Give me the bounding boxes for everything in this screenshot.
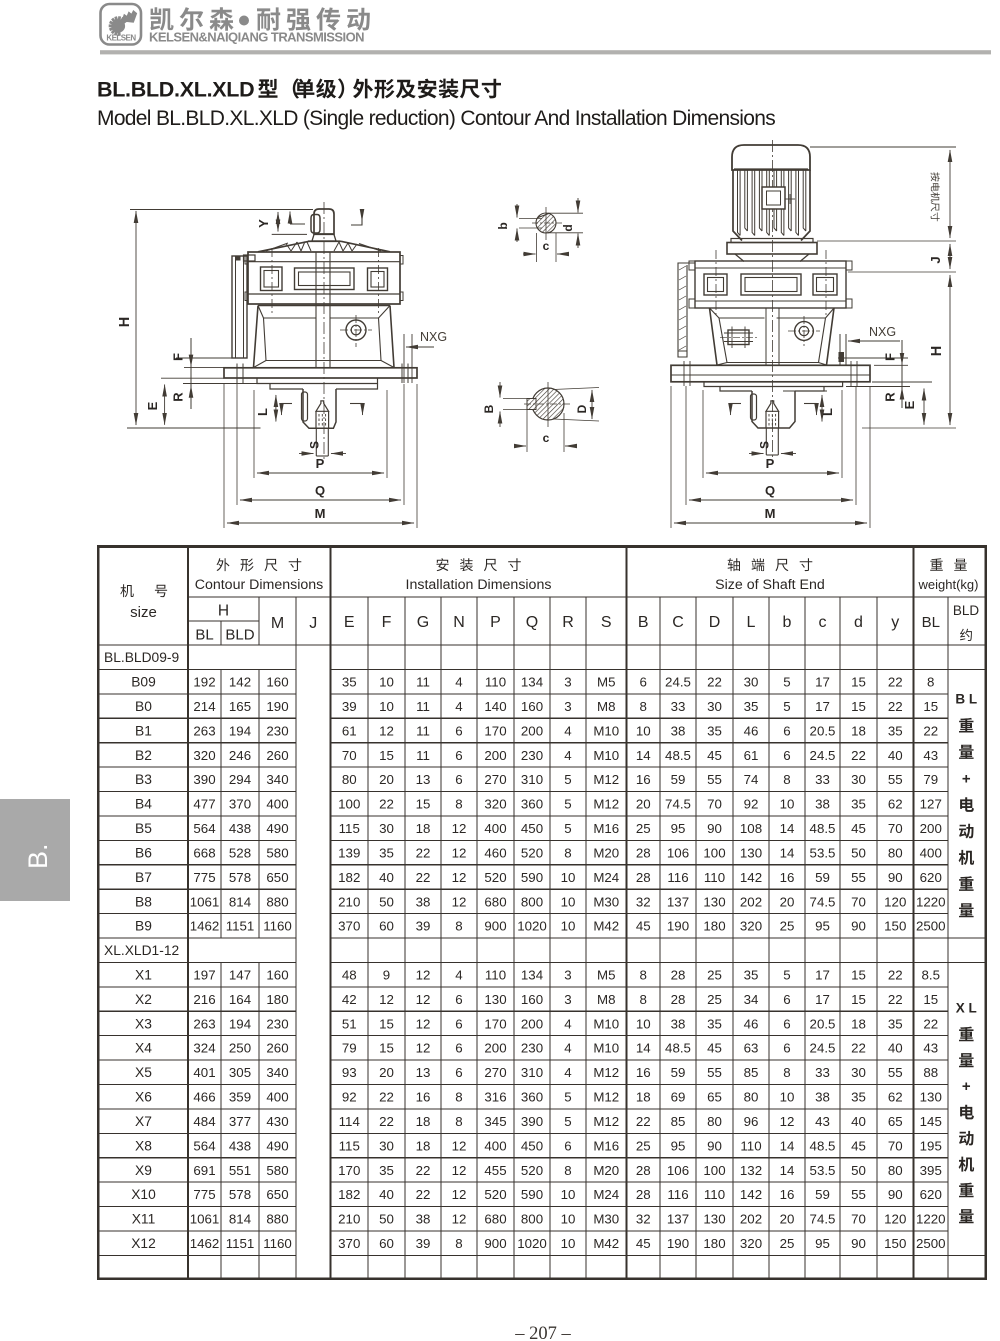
- svg-text:12: 12: [452, 1187, 467, 1202]
- svg-text:6: 6: [455, 723, 462, 738]
- svg-text:145: 145: [920, 1114, 942, 1129]
- svg-text:S: S: [601, 614, 612, 631]
- svg-text:6: 6: [783, 1041, 790, 1056]
- svg-text:b: b: [783, 614, 792, 631]
- svg-text:R: R: [883, 392, 898, 402]
- svg-text:316: 316: [484, 1090, 506, 1105]
- svg-text:370: 370: [338, 919, 360, 934]
- svg-text:18: 18: [416, 1114, 431, 1129]
- svg-text:320: 320: [740, 919, 762, 934]
- svg-text:22: 22: [888, 992, 903, 1007]
- svg-text:30: 30: [851, 1065, 866, 1080]
- svg-text:35: 35: [707, 1016, 722, 1031]
- svg-text:270: 270: [484, 772, 506, 787]
- svg-text:160: 160: [266, 675, 288, 690]
- svg-text:R: R: [562, 614, 574, 631]
- svg-text:28: 28: [671, 968, 686, 983]
- svg-text:25: 25: [780, 1236, 795, 1251]
- svg-text:M30: M30: [593, 894, 619, 909]
- svg-text:48: 48: [342, 968, 357, 983]
- svg-text:8: 8: [640, 699, 647, 714]
- svg-text:8: 8: [564, 845, 571, 860]
- svg-text:M: M: [271, 615, 284, 632]
- svg-text:1160: 1160: [263, 1236, 292, 1251]
- svg-text:650: 650: [266, 870, 288, 885]
- svg-text:40: 40: [379, 870, 394, 885]
- svg-text:X12: X12: [131, 1236, 156, 1251]
- svg-text:22: 22: [888, 699, 903, 714]
- svg-text:25: 25: [707, 968, 722, 983]
- svg-text:10: 10: [561, 894, 576, 909]
- svg-text:142: 142: [740, 870, 762, 885]
- svg-text:20.5: 20.5: [810, 1016, 836, 1031]
- svg-text:18: 18: [851, 1016, 866, 1031]
- svg-text:M5: M5: [597, 675, 615, 690]
- svg-text:70: 70: [707, 797, 722, 812]
- svg-text:520: 520: [484, 870, 506, 885]
- svg-text:M10: M10: [593, 1041, 619, 1056]
- svg-text:15: 15: [851, 968, 866, 983]
- svg-text:110: 110: [485, 968, 506, 983]
- svg-text:96: 96: [744, 1114, 759, 1129]
- svg-text:53.5: 53.5: [810, 845, 836, 860]
- svg-text:70: 70: [888, 821, 903, 836]
- svg-text:12: 12: [452, 1138, 467, 1153]
- svg-text:490: 490: [266, 1138, 288, 1153]
- svg-text:100: 100: [703, 1163, 725, 1178]
- svg-text:1061: 1061: [190, 894, 220, 909]
- svg-text:484: 484: [193, 1114, 215, 1129]
- svg-text:S: S: [308, 441, 322, 449]
- svg-text:182: 182: [338, 1187, 360, 1202]
- svg-text:20: 20: [636, 797, 651, 812]
- svg-text:M30: M30: [593, 1212, 619, 1227]
- svg-text:5: 5: [564, 821, 571, 836]
- svg-text:200: 200: [484, 748, 506, 763]
- svg-text:2500: 2500: [916, 919, 946, 934]
- svg-text:28: 28: [636, 1163, 651, 1178]
- svg-text:214: 214: [193, 699, 215, 714]
- svg-text:1151: 1151: [226, 1236, 255, 1251]
- svg-text:B1: B1: [135, 723, 152, 738]
- svg-text:M: M: [765, 506, 776, 521]
- svg-text:15: 15: [923, 699, 938, 714]
- svg-text:590: 590: [521, 1187, 543, 1202]
- svg-text:28: 28: [671, 992, 686, 1007]
- svg-text:260: 260: [266, 748, 288, 763]
- svg-text:294: 294: [229, 772, 251, 787]
- svg-text:450: 450: [521, 821, 543, 836]
- svg-text:X3: X3: [135, 1016, 152, 1031]
- svg-text:20: 20: [780, 894, 795, 909]
- svg-text:BL.BLD09-9: BL.BLD09-9: [104, 650, 179, 665]
- svg-text:50: 50: [379, 1212, 394, 1227]
- svg-text:190: 190: [667, 919, 689, 934]
- svg-text:X2: X2: [135, 992, 152, 1007]
- svg-text:Contour Dimensions: Contour Dimensions: [195, 577, 324, 593]
- svg-text:190: 190: [667, 1236, 689, 1251]
- svg-text:4: 4: [455, 675, 462, 690]
- svg-text:74: 74: [744, 772, 759, 787]
- svg-text:40: 40: [888, 748, 903, 763]
- svg-text:345: 345: [484, 1114, 506, 1129]
- svg-text:200: 200: [920, 821, 942, 836]
- svg-text:8: 8: [783, 772, 790, 787]
- svg-text:106: 106: [667, 845, 689, 860]
- svg-text:95: 95: [815, 1236, 830, 1251]
- svg-text:M12: M12: [593, 1114, 619, 1129]
- svg-text:39: 39: [342, 699, 357, 714]
- svg-text:230: 230: [266, 1016, 288, 1031]
- svg-text:X11: X11: [132, 1212, 156, 1227]
- svg-text:35: 35: [888, 1016, 903, 1031]
- svg-text:260: 260: [266, 1041, 288, 1056]
- svg-text:BL: BL: [922, 614, 940, 631]
- svg-text:70: 70: [888, 1138, 903, 1153]
- svg-text:Q: Q: [526, 614, 538, 631]
- svg-text:6: 6: [783, 992, 790, 1007]
- svg-text:74.5: 74.5: [665, 797, 691, 812]
- svg-text:43: 43: [923, 1041, 938, 1056]
- svg-text:B8: B8: [135, 894, 152, 909]
- svg-text:310: 310: [521, 772, 543, 787]
- svg-text:+: +: [962, 1078, 971, 1095]
- svg-text:110: 110: [740, 1138, 761, 1153]
- svg-text:BL.BLD.XL.XLD: BL.BLD.XL.XLD: [97, 78, 254, 102]
- svg-text:X9: X9: [135, 1163, 152, 1178]
- svg-text:16: 16: [636, 772, 651, 787]
- svg-text:192: 192: [193, 675, 215, 690]
- svg-text:18: 18: [416, 821, 431, 836]
- svg-text:134: 134: [521, 968, 543, 983]
- svg-text:4: 4: [455, 968, 462, 983]
- svg-text:564: 564: [193, 821, 215, 836]
- svg-text:22: 22: [416, 1187, 431, 1202]
- svg-text:691: 691: [193, 1163, 215, 1178]
- svg-text:160: 160: [521, 992, 543, 1007]
- svg-text:c: c: [543, 431, 550, 445]
- svg-text:12: 12: [452, 845, 467, 860]
- svg-text:69: 69: [671, 1090, 686, 1105]
- svg-text:b: b: [496, 222, 510, 229]
- svg-text:28: 28: [636, 845, 651, 860]
- svg-text:6: 6: [783, 723, 790, 738]
- svg-text:38: 38: [416, 1212, 431, 1227]
- svg-text:1220: 1220: [916, 1212, 946, 1227]
- svg-text:401: 401: [193, 1065, 215, 1080]
- svg-text:4: 4: [564, 1065, 571, 1080]
- svg-text:210: 210: [338, 894, 360, 909]
- svg-text:39: 39: [416, 919, 431, 934]
- svg-text:45: 45: [636, 1236, 651, 1251]
- svg-text:1462: 1462: [190, 1236, 220, 1251]
- svg-text:20: 20: [379, 772, 394, 787]
- svg-text:90: 90: [707, 1138, 722, 1153]
- svg-text:28: 28: [636, 1187, 651, 1202]
- svg-text:22: 22: [416, 845, 431, 860]
- svg-text:5: 5: [783, 675, 790, 690]
- svg-text:1020: 1020: [517, 1236, 547, 1251]
- svg-text:370: 370: [229, 797, 251, 812]
- svg-text:170: 170: [484, 1016, 506, 1031]
- svg-text:weight(kg): weight(kg): [918, 577, 979, 592]
- svg-text:M42: M42: [593, 1236, 619, 1251]
- svg-text:8: 8: [640, 992, 647, 1007]
- svg-text:360: 360: [521, 1090, 543, 1105]
- svg-text:M20: M20: [593, 845, 619, 860]
- svg-text:B7: B7: [135, 870, 152, 885]
- svg-text:17: 17: [815, 968, 830, 983]
- svg-text:J: J: [309, 615, 317, 632]
- svg-text:size: size: [130, 604, 157, 621]
- svg-text:E: E: [145, 401, 160, 410]
- svg-text:147: 147: [229, 968, 251, 983]
- svg-text:190: 190: [266, 699, 288, 714]
- svg-text:80: 80: [342, 772, 357, 787]
- svg-text:11: 11: [416, 699, 430, 714]
- svg-text:377: 377: [229, 1114, 251, 1129]
- svg-text:25: 25: [707, 992, 722, 1007]
- svg-text:– 207 –: – 207 –: [514, 1324, 571, 1341]
- svg-text:564: 564: [193, 1138, 215, 1153]
- svg-text:85: 85: [671, 1114, 686, 1129]
- svg-text:320: 320: [484, 797, 506, 812]
- svg-text:106: 106: [667, 1163, 689, 1178]
- svg-text:230: 230: [266, 723, 288, 738]
- svg-text:165: 165: [229, 699, 251, 714]
- svg-text:NXG: NXG: [420, 330, 447, 344]
- svg-text:45: 45: [636, 919, 651, 934]
- svg-text:6: 6: [783, 1016, 790, 1031]
- svg-text:35: 35: [379, 845, 394, 860]
- svg-text:12: 12: [416, 1041, 431, 1056]
- svg-text:18: 18: [636, 1090, 651, 1105]
- svg-text:90: 90: [851, 919, 866, 934]
- svg-text:650: 650: [266, 1187, 288, 1202]
- svg-text:110: 110: [704, 1187, 725, 1202]
- svg-text:46: 46: [744, 723, 759, 738]
- svg-text:400: 400: [484, 821, 506, 836]
- svg-text:800: 800: [521, 1212, 543, 1227]
- svg-text:8: 8: [564, 1163, 571, 1178]
- svg-text:X7: X7: [135, 1114, 152, 1129]
- svg-text:210: 210: [338, 1212, 360, 1227]
- svg-text:360: 360: [521, 797, 543, 812]
- svg-text:B09: B09: [131, 675, 156, 690]
- svg-text:6: 6: [455, 748, 462, 763]
- svg-text:3: 3: [564, 968, 571, 983]
- svg-text:43: 43: [815, 1114, 830, 1129]
- svg-text:12: 12: [379, 723, 394, 738]
- svg-text:430: 430: [266, 1114, 288, 1129]
- svg-text:22: 22: [923, 723, 938, 738]
- svg-text:320: 320: [740, 1236, 762, 1251]
- svg-text:c: c: [819, 614, 827, 631]
- svg-text:61: 61: [744, 748, 759, 763]
- svg-text:4: 4: [564, 1016, 571, 1031]
- svg-text:F: F: [382, 614, 392, 631]
- svg-text:M8: M8: [597, 992, 615, 1007]
- svg-text:H: H: [929, 346, 945, 356]
- svg-text:45: 45: [707, 748, 722, 763]
- svg-text:61: 61: [342, 723, 357, 738]
- svg-text:M8: M8: [597, 699, 615, 714]
- svg-text:X10: X10: [131, 1187, 156, 1202]
- svg-text:70: 70: [851, 894, 866, 909]
- svg-text:88: 88: [923, 1065, 938, 1080]
- svg-text:L: L: [255, 408, 270, 416]
- svg-text:12: 12: [379, 992, 394, 1007]
- svg-text:4: 4: [455, 699, 462, 714]
- svg-text:X4: X4: [135, 1041, 152, 1056]
- svg-text:15: 15: [379, 748, 394, 763]
- svg-text:8: 8: [455, 919, 462, 934]
- svg-text:668: 668: [193, 845, 215, 860]
- svg-text:200: 200: [521, 1016, 543, 1031]
- svg-text:M10: M10: [593, 1016, 619, 1031]
- svg-text:65: 65: [707, 1090, 722, 1105]
- svg-text:F: F: [171, 353, 186, 361]
- svg-text:48.5: 48.5: [665, 748, 691, 763]
- svg-text:B: B: [482, 404, 496, 413]
- svg-text:16: 16: [636, 1065, 651, 1080]
- svg-text:D: D: [709, 614, 721, 631]
- svg-text:12: 12: [416, 1016, 431, 1031]
- svg-text:22: 22: [888, 968, 903, 983]
- svg-text:30: 30: [744, 675, 759, 690]
- svg-text:80: 80: [707, 1114, 722, 1129]
- svg-text:108: 108: [740, 821, 762, 836]
- svg-text:38: 38: [671, 723, 686, 738]
- svg-text:Size of Shaft End: Size of Shaft End: [715, 577, 825, 593]
- svg-text:390: 390: [521, 1114, 543, 1129]
- svg-text:12: 12: [452, 894, 467, 909]
- svg-text:880: 880: [266, 1212, 288, 1227]
- svg-text:35: 35: [342, 675, 357, 690]
- svg-text:246: 246: [229, 748, 251, 763]
- svg-text:M: M: [315, 506, 326, 521]
- svg-text:115: 115: [339, 821, 360, 836]
- svg-text:22: 22: [379, 797, 394, 812]
- svg-text:16: 16: [780, 1187, 795, 1202]
- svg-text:197: 197: [193, 968, 215, 983]
- svg-text:55: 55: [707, 772, 722, 787]
- svg-text:230: 230: [521, 748, 543, 763]
- svg-text:Q: Q: [315, 483, 325, 498]
- svg-text:10: 10: [561, 870, 576, 885]
- svg-text:395: 395: [920, 1163, 942, 1178]
- svg-text:3: 3: [564, 675, 571, 690]
- svg-text:22: 22: [416, 870, 431, 885]
- svg-text:25: 25: [636, 1138, 651, 1153]
- svg-text:14: 14: [780, 1163, 795, 1178]
- svg-text:13: 13: [416, 1065, 431, 1080]
- svg-text:400: 400: [484, 1138, 506, 1153]
- svg-text:Y: Y: [256, 219, 271, 228]
- svg-text:170: 170: [338, 1163, 360, 1178]
- svg-text:132: 132: [740, 1163, 762, 1178]
- svg-text:55: 55: [851, 1187, 866, 1202]
- svg-text:775: 775: [193, 870, 215, 885]
- svg-text:137: 137: [667, 1212, 689, 1227]
- svg-text:50: 50: [379, 894, 394, 909]
- svg-text:F: F: [883, 353, 898, 361]
- svg-text:45: 45: [851, 821, 866, 836]
- svg-text:142: 142: [229, 675, 251, 690]
- svg-text:B4: B4: [135, 797, 152, 812]
- svg-text:1160: 1160: [263, 919, 292, 934]
- svg-text:14: 14: [780, 1138, 795, 1153]
- svg-text:P: P: [316, 456, 325, 471]
- svg-text:X5: X5: [135, 1065, 152, 1080]
- svg-text:460: 460: [484, 845, 506, 860]
- svg-text:M42: M42: [593, 919, 619, 934]
- svg-text:85: 85: [744, 1065, 759, 1080]
- svg-text:BLD: BLD: [953, 603, 980, 618]
- svg-text:12: 12: [452, 821, 467, 836]
- svg-text:8: 8: [455, 797, 462, 812]
- svg-text:305: 305: [229, 1065, 251, 1080]
- svg-text:130: 130: [920, 1090, 942, 1105]
- svg-text:P: P: [766, 456, 775, 471]
- svg-text:93: 93: [342, 1065, 357, 1080]
- svg-text:216: 216: [193, 992, 215, 1007]
- svg-text:3: 3: [564, 699, 571, 714]
- svg-text:263: 263: [193, 723, 215, 738]
- svg-text:20: 20: [379, 1065, 394, 1080]
- svg-text:340: 340: [266, 1065, 288, 1080]
- svg-text:9: 9: [383, 968, 390, 983]
- svg-text:370: 370: [338, 1236, 360, 1251]
- svg-text:X8: X8: [135, 1138, 152, 1153]
- svg-text:520: 520: [521, 1163, 543, 1178]
- svg-text:230: 230: [521, 1041, 543, 1056]
- svg-text:390: 390: [193, 772, 215, 787]
- svg-text:120: 120: [884, 1212, 906, 1227]
- svg-text:10: 10: [561, 1236, 576, 1251]
- svg-text:5: 5: [564, 797, 571, 812]
- svg-text:814: 814: [229, 1212, 251, 1227]
- svg-text:B: B: [638, 614, 649, 631]
- svg-text:79: 79: [342, 1041, 357, 1056]
- svg-text:438: 438: [229, 821, 251, 836]
- svg-text:38: 38: [815, 1090, 830, 1105]
- svg-text:90: 90: [888, 1187, 903, 1202]
- svg-text:11: 11: [416, 748, 430, 763]
- svg-text:BL: BL: [195, 627, 213, 644]
- svg-text:466: 466: [193, 1090, 215, 1105]
- svg-text:35: 35: [851, 1090, 866, 1105]
- svg-text:15: 15: [379, 1016, 394, 1031]
- svg-text:5: 5: [564, 1114, 571, 1129]
- svg-text:51: 51: [342, 1016, 357, 1031]
- svg-text:580: 580: [266, 1163, 288, 1178]
- svg-text:22: 22: [851, 748, 866, 763]
- svg-text:5: 5: [783, 699, 790, 714]
- svg-text:42: 42: [342, 992, 357, 1007]
- svg-text:Model BL.BLD.XL.XLD (Single re: Model BL.BLD.XL.XLD (Single reduction) C…: [97, 107, 775, 130]
- svg-text:520: 520: [484, 1187, 506, 1202]
- svg-text:180: 180: [266, 992, 288, 1007]
- svg-text:6: 6: [783, 748, 790, 763]
- svg-text:11: 11: [416, 723, 430, 738]
- svg-text:74.5: 74.5: [810, 894, 836, 909]
- svg-text:6: 6: [455, 1016, 462, 1031]
- svg-text:32: 32: [636, 1212, 651, 1227]
- svg-text:M12: M12: [593, 797, 619, 812]
- svg-text:45: 45: [707, 1041, 722, 1056]
- svg-text:P: P: [490, 614, 501, 631]
